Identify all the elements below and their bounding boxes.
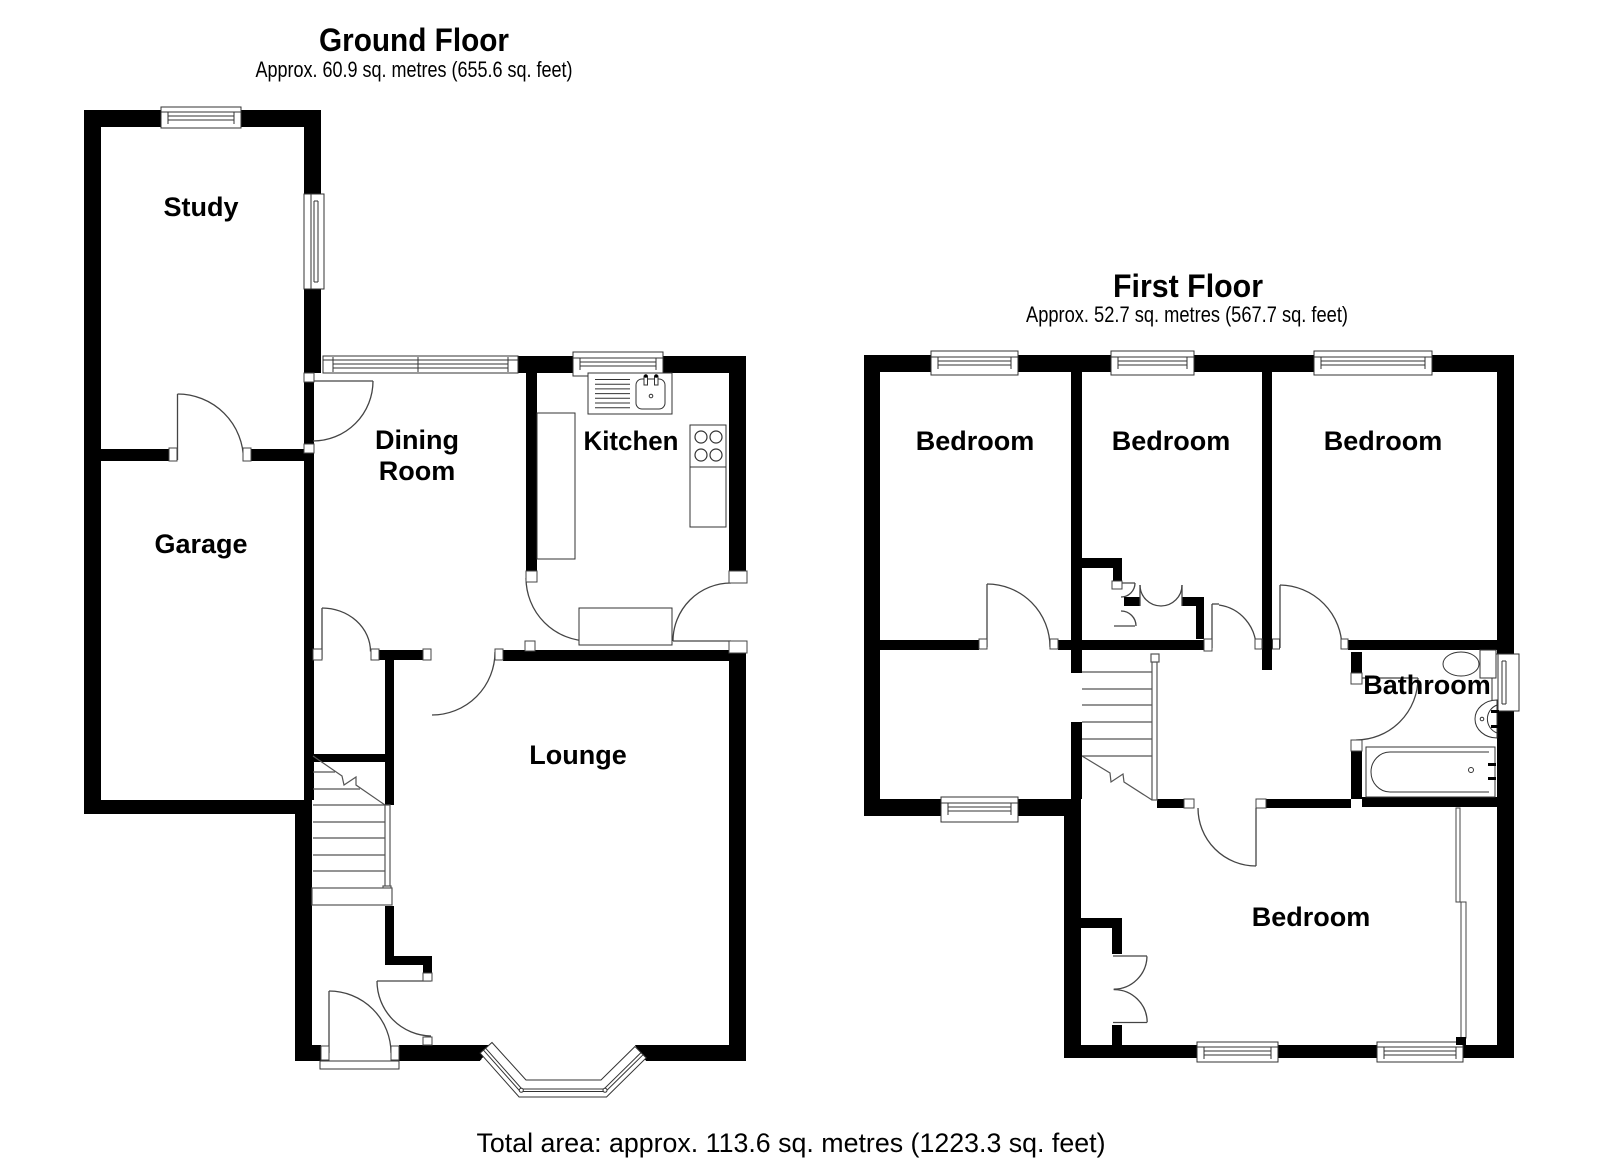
- svg-text:Bedroom: Bedroom: [1112, 426, 1231, 456]
- svg-text:Lounge: Lounge: [529, 740, 626, 770]
- svg-text:Approx. 52.7 sq. metres (567.7: Approx. 52.7 sq. metres (567.7 sq. feet): [1026, 302, 1348, 327]
- svg-text:Study: Study: [163, 192, 238, 222]
- svg-text:Total area: approx. 113.6 sq.: Total area: approx. 113.6 sq. metres (12…: [477, 1128, 1106, 1158]
- svg-text:Ground Floor: Ground Floor: [319, 22, 509, 58]
- svg-text:Kitchen: Kitchen: [584, 426, 679, 456]
- svg-text:Bedroom: Bedroom: [1324, 426, 1443, 456]
- svg-text:Bedroom: Bedroom: [1252, 902, 1371, 932]
- svg-text:Garage: Garage: [154, 529, 247, 559]
- svg-text:Bedroom: Bedroom: [916, 426, 1035, 456]
- svg-text:Room: Room: [379, 456, 456, 486]
- svg-text:Approx. 60.9 sq. metres (655.6: Approx. 60.9 sq. metres (655.6 sq. feet): [256, 57, 573, 82]
- svg-text:First Floor: First Floor: [1113, 268, 1263, 304]
- svg-text:Bathroom: Bathroom: [1363, 670, 1491, 700]
- svg-text:Dining: Dining: [375, 425, 459, 455]
